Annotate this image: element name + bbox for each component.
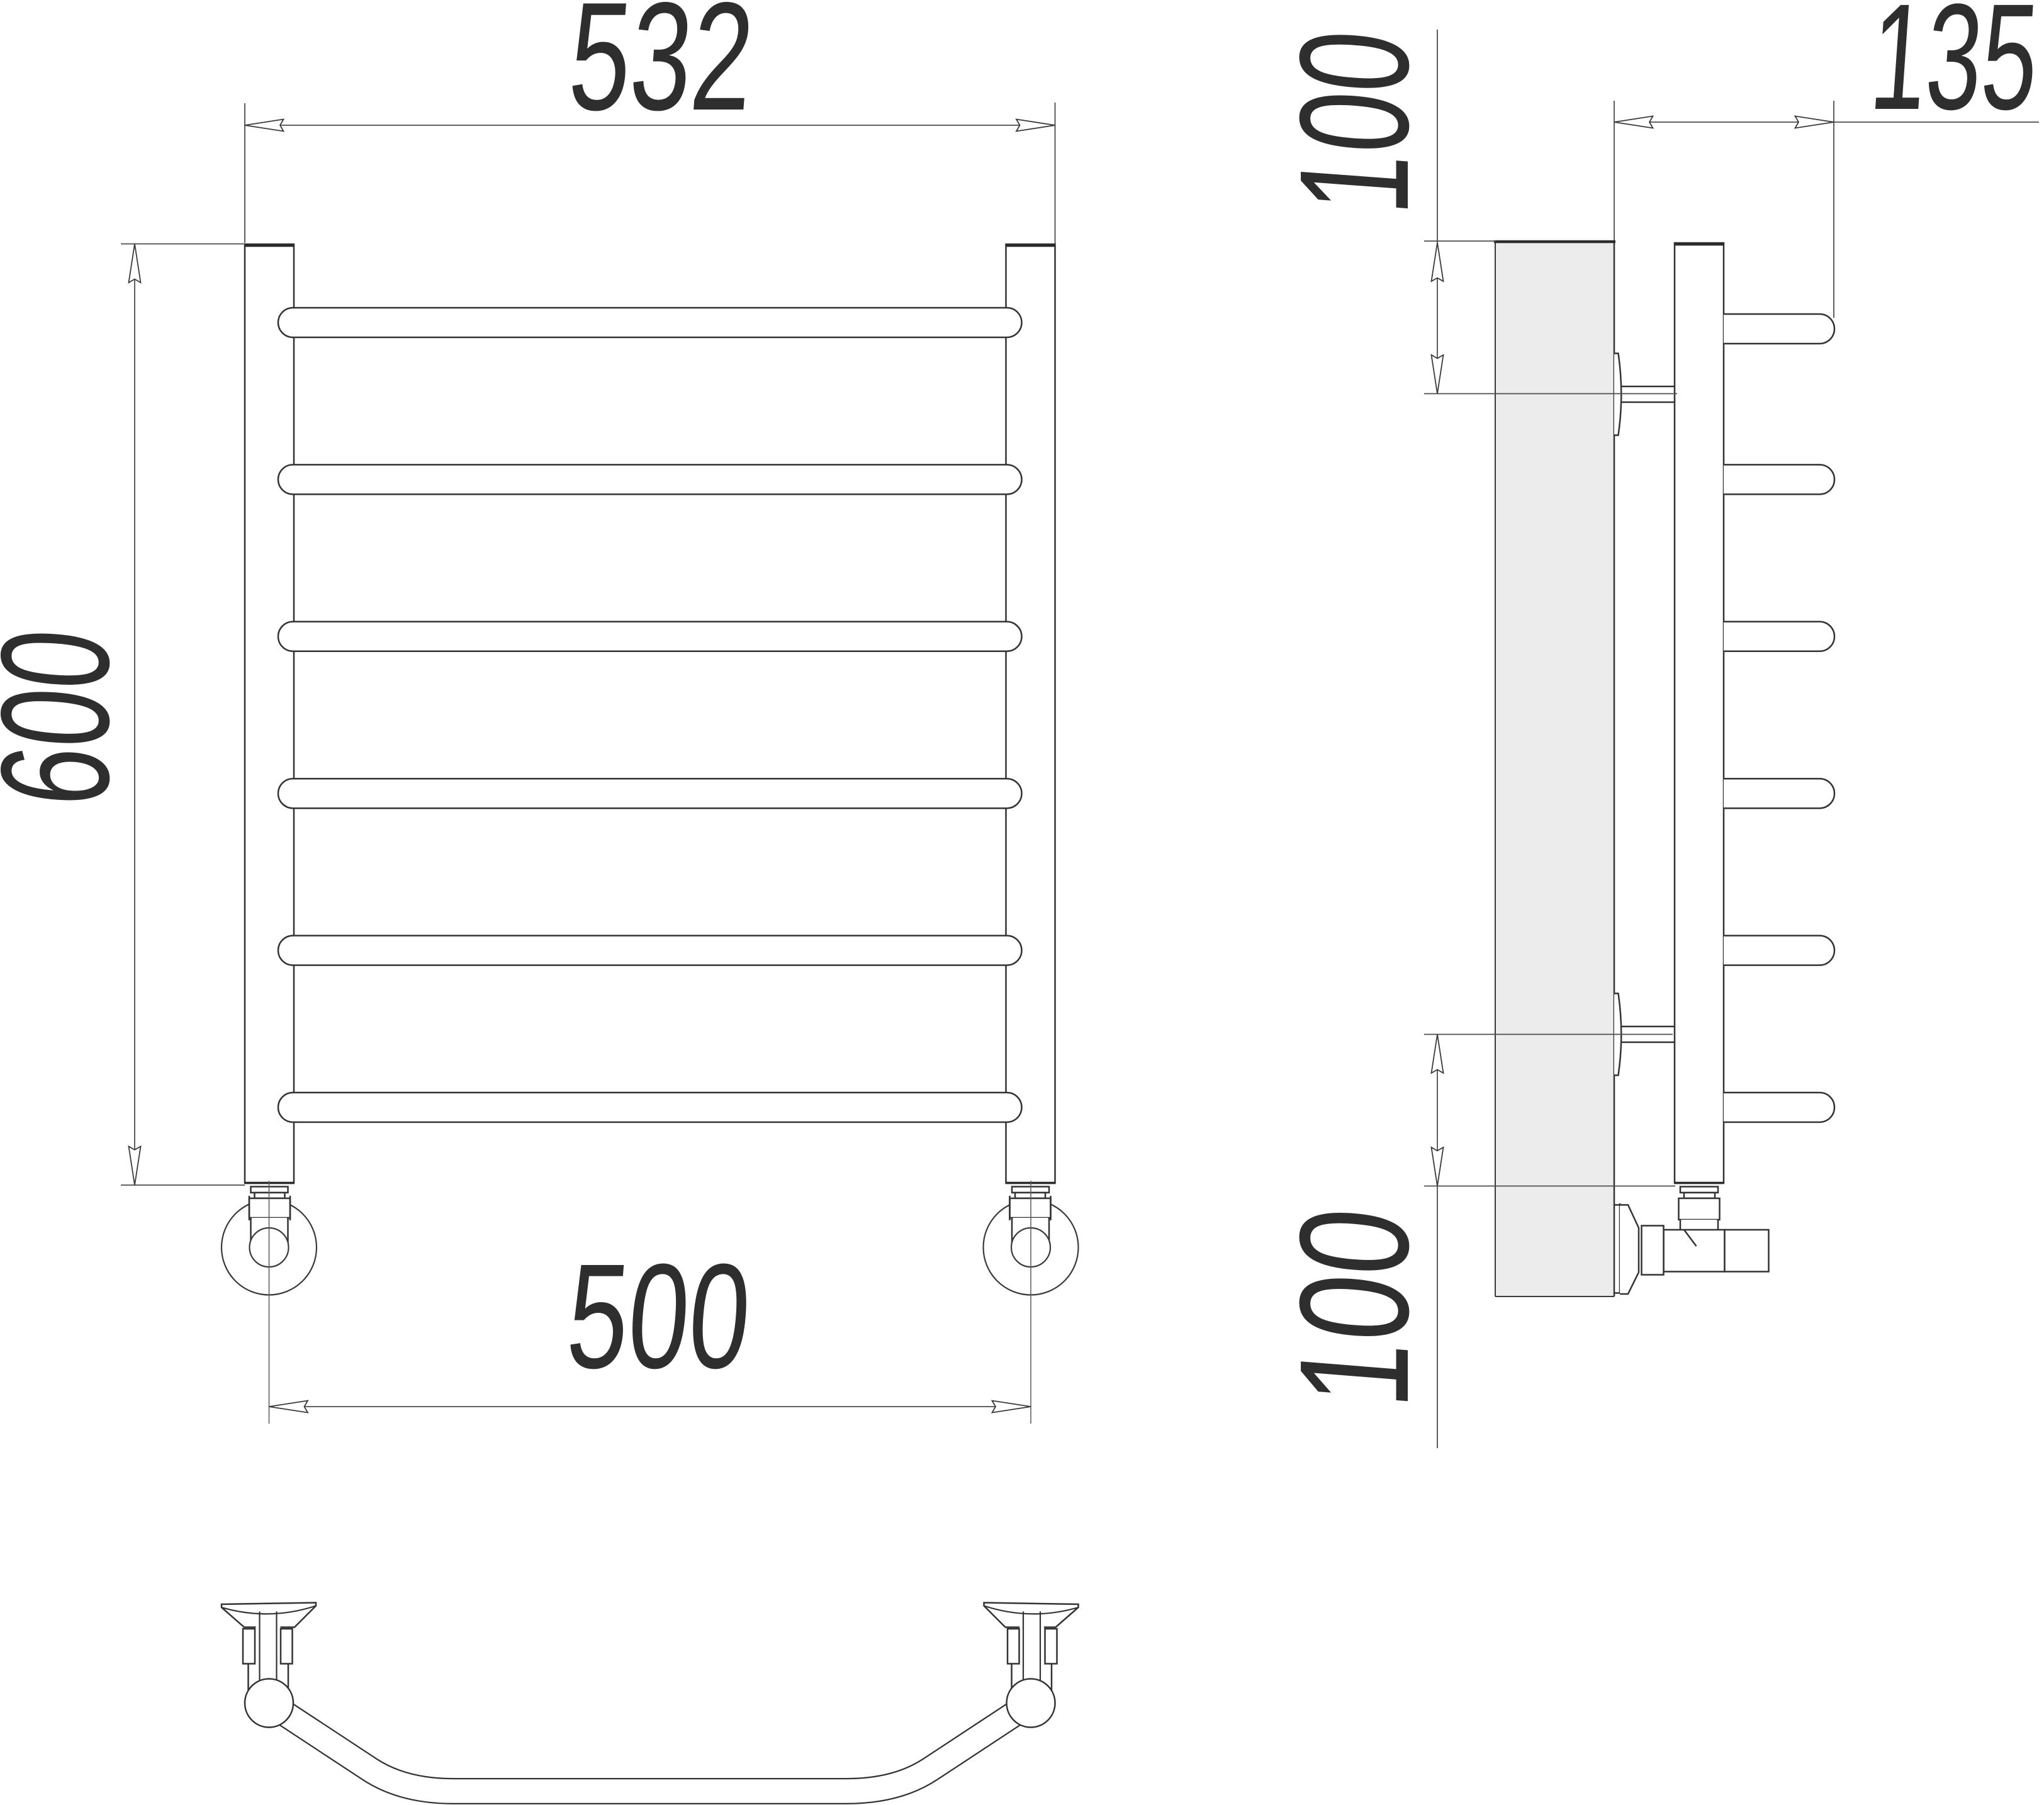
svg-text:532: 532: [564, 0, 760, 143]
svg-text:100: 100: [1268, 25, 1441, 219]
svg-text:500: 500: [562, 1234, 756, 1400]
svg-text:100: 100: [1267, 1202, 1440, 1413]
svg-text:135: 135: [1865, 0, 2043, 142]
svg-text:600: 600: [0, 624, 142, 811]
